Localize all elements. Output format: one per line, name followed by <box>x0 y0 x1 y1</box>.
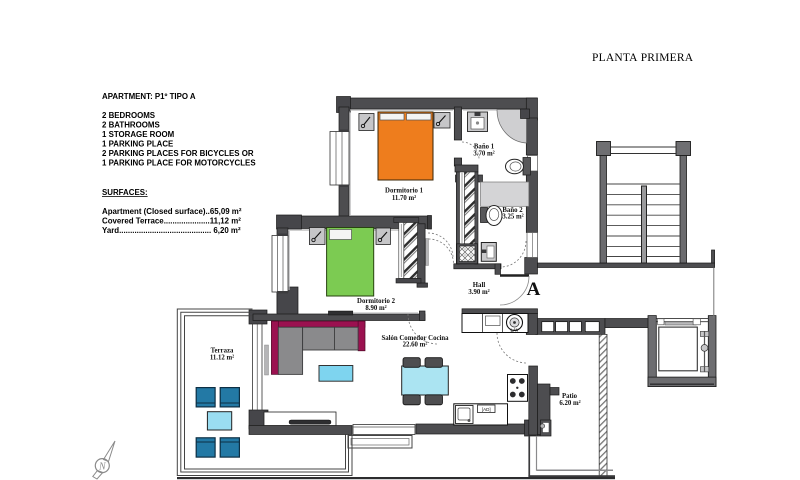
svg-text:Baño 1: Baño 1 <box>474 144 495 151</box>
svg-text:Hall: Hall <box>473 282 486 289</box>
svg-text:Patio: Patio <box>562 393 578 400</box>
svg-text:1 STORAGE ROOM: 1 STORAGE ROOM <box>102 130 175 139</box>
svg-text:3.25 m²: 3.25 m² <box>502 214 523 221</box>
svg-text:Dormitorio 2: Dormitorio 2 <box>357 298 396 305</box>
svg-text:8.90 m²: 8.90 m² <box>365 305 386 312</box>
svg-text:PLANTA PRIMERA: PLANTA PRIMERA <box>592 52 694 64</box>
svg-text:Dormitorio 1: Dormitorio 1 <box>385 188 424 195</box>
svg-text:3.70 m²: 3.70 m² <box>473 151 494 158</box>
svg-text:22.60 m²: 22.60 m² <box>403 342 428 349</box>
svg-text:Terraza: Terraza <box>211 348 234 355</box>
svg-text:Yard..........................: Yard....................................… <box>102 226 241 235</box>
svg-text:APARTMENT: P1º TIPO A: APARTMENT: P1º TIPO A <box>102 92 196 101</box>
svg-text:11.12 m²: 11.12 m² <box>210 355 234 362</box>
svg-text:A: A <box>527 279 541 300</box>
svg-text:LAV: LAV <box>510 328 518 333</box>
svg-text:11.70 m²: 11.70 m² <box>392 195 416 202</box>
svg-text:6.20 m²: 6.20 m² <box>559 400 580 407</box>
svg-text:3.90 m²: 3.90 m² <box>468 289 489 296</box>
svg-text:Apartment (Closed surface)..65: Apartment (Closed surface)..65,09 m² <box>102 207 242 216</box>
svg-text:1 PARKING PLACE FOR MOTORCYCLE: 1 PARKING PLACE FOR MOTORCYCLES <box>102 159 256 168</box>
svg-text:SURFACES:: SURFACES: <box>102 188 148 197</box>
svg-text:1 PARKING PLACE: 1 PARKING PLACE <box>102 140 173 149</box>
svg-text:N: N <box>98 462 107 473</box>
svg-text:2 BEDROOMS: 2 BEDROOMS <box>102 111 155 120</box>
svg-text:[AD]: [AD] <box>482 407 491 412</box>
svg-text:Covered Terrace...............: Covered Terrace.....................11,1… <box>102 217 241 226</box>
svg-text:2 BATHROOMS: 2 BATHROOMS <box>102 121 160 130</box>
svg-text:2 PARKING PLACES FOR BICYCLES: 2 PARKING PLACES FOR BICYCLES OR <box>102 149 254 158</box>
